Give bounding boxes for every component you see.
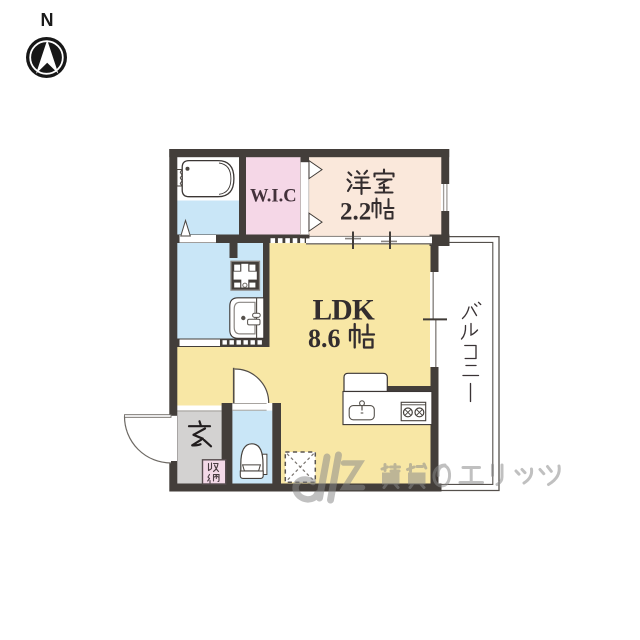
svg-text:N: N xyxy=(41,10,54,30)
svg-text:8.6: 8.6 xyxy=(308,324,341,353)
svg-text:LDK: LDK xyxy=(313,295,375,327)
svg-text:2.2: 2.2 xyxy=(340,199,371,226)
svg-text:W.I.C: W.I.C xyxy=(250,187,297,207)
